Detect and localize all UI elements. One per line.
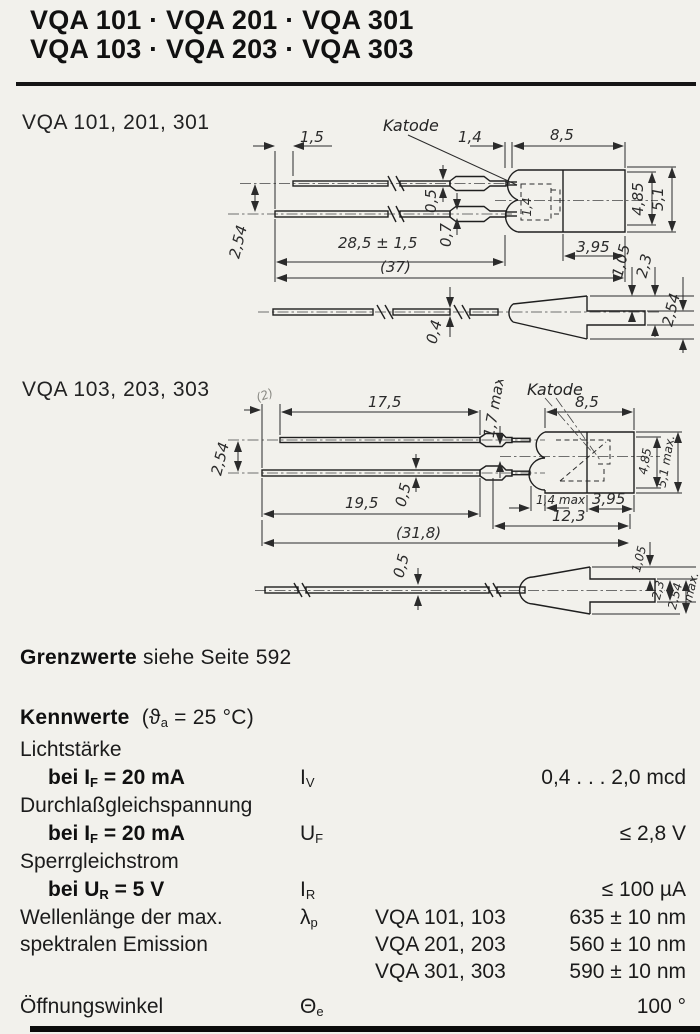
dim-5-1-max: 5,1 max. [655,434,678,488]
dim-2-54-left: 2,54 [207,440,233,477]
condition-if-20ma-2: bei IF = 20 mA [48,822,185,846]
condition-ur-5v: bei UR = 5 V [48,878,164,902]
dim-3-95: 3,95 [576,238,609,256]
param-wellenlaenge-1: Wellenlänge der max. [20,906,223,930]
dim-0-4: 0,4 [423,318,446,346]
dim-1-4-top: 1,4 [458,128,482,146]
kennwerte-condition: (ϑa = 25 °C) [136,706,254,729]
table-row: Lichtstärke [0,738,700,766]
symbol-lambda-p: λp [300,906,318,930]
dim-2: (2) [254,386,275,405]
dim-37: (37) [380,258,411,276]
dim-2-3: 2,3 [633,252,656,280]
value-590nm: 590 ± 10 nm [569,960,686,984]
dim-1-4-max: 1,4 max [536,493,586,507]
dim-max-label: max. [681,571,700,603]
dimensions: 1,5 Katode 1,4 8,5 0,5 0,7 1,4 4,85 5,1 [225,116,694,353]
dim-4-85: 4,85 [629,182,647,215]
dim-1-05: 1,05 [629,544,649,573]
symbol-iv: IV [300,766,315,790]
technical-drawing-vqa101: 1,5 Katode 1,4 8,5 0,5 0,7 1,4 4,85 5,1 [0,115,700,377]
value-100deg: 100 ° [637,995,686,1019]
dim-1-5: 1,5 [300,128,324,146]
grenzwerte-line: Grenzwerte siehe Seite 592 [20,646,291,670]
table-row: Durchlaßgleichspannung [0,794,700,822]
table-row: Sperrgleichstrom [0,850,700,878]
dim-4-85: 4,85 [636,447,654,476]
led-body-top-view [529,432,634,493]
variant-vqa-301-303: VQA 301, 303 [375,960,506,984]
datasheet-page: { "title": { "line1": "VQA 101 · VQA 201… [0,0,700,1034]
dim-28-5: 28,5 ± 1,5 [338,234,417,252]
value-iv: 0,4 . . . 2,0 mcd [541,766,686,790]
table-row: Öffnungswinkel Θe 100 ° [0,995,700,1023]
table-row: spektralen Emission VQA 201, 203 560 ± 1… [0,933,700,961]
dim-0-5-top: 0,5 [392,481,415,509]
value-ir: ≤ 100 µA [602,878,686,902]
value-635nm: 635 ± 10 nm [569,906,686,930]
technical-drawing-vqa103: (2) 17,5 1,7 max Katode 8,5 2,54 0,5 19,… [0,380,700,645]
value-uf: ≤ 2,8 V [620,822,686,846]
dim-2-3: 2,3 [649,579,667,601]
dim-19-5: 19,5 [345,494,378,512]
dim-1-05: 1,05 [608,242,634,279]
katode-label: Katode [383,116,439,135]
page-title-line1: VQA 101 · VQA 201 · VQA 301 [30,5,414,36]
dim-31-8: (31,8) [396,524,441,542]
table-row: bei IF = 20 mA IV 0,4 . . . 2,0 mcd [0,766,700,794]
dim-8-5: 8,5 [550,126,574,144]
variant-vqa-201-203: VQA 201, 203 [375,933,506,957]
dim-12-3: 12,3 [552,507,585,525]
table-row: Wellenlänge der max. λp VQA 101, 103 635… [0,906,700,934]
dim-0-5: 0,5 [422,189,440,213]
symbol-theta-e: Θe [300,995,324,1019]
symbol-ir: IR [300,878,315,902]
param-durchlass: Durchlaßgleichspannung [20,794,252,818]
param-sperr: Sperrgleichstrom [20,850,179,874]
table-row: bei IF = 20 mA UF ≤ 2,8 V [0,822,700,850]
kennwerte-heading: Kennwerte (ϑa = 25 °C) [20,706,254,730]
led-leads-top-view [275,176,517,222]
page-bottom-rule [30,1026,700,1032]
dim-17-5: 17,5 [368,393,401,411]
led-side-view [273,296,645,339]
table-row: VQA 301, 303 590 ± 10 nm [0,960,700,988]
dim-5-1: 5,1 [649,187,667,211]
dim-3-95: 3,95 [592,490,625,508]
grenzwerte-rest: siehe Seite 592 [137,646,292,669]
param-oeffnungswinkel: Öffnungswinkel [20,995,163,1019]
table-row: bei UR = 5 V IR ≤ 100 µA [0,878,700,906]
kennwerte-bold: Kennwerte [20,706,130,729]
dim-0-5-side: 0,5 [390,552,413,580]
dim-1-7-max: 1,7 max [480,380,508,439]
dim-8-5: 8,5 [575,393,599,411]
param-wellenlaenge-2: spektralen Emission [20,933,208,957]
header-rule [16,82,696,86]
dim-1-4-inner: 1,4 [520,197,534,216]
centerlines [228,440,665,591]
symbol-uf: UF [300,822,323,846]
variant-vqa-101-103: VQA 101, 103 [375,906,506,930]
condition-if-20ma: bei IF = 20 mA [48,766,185,790]
value-560nm: 560 ± 10 nm [569,933,686,957]
dim-2-54-right: 2,54 [658,291,684,328]
page-title-line2: VQA 103 · VQA 203 · VQA 303 [30,34,414,65]
param-lichtstaerke: Lichtstärke [20,738,122,762]
grenzwerte-bold: Grenzwerte [20,646,137,669]
dim-0-7: 0,7 [437,223,455,247]
dim-2-54-left: 2,54 [225,223,251,260]
